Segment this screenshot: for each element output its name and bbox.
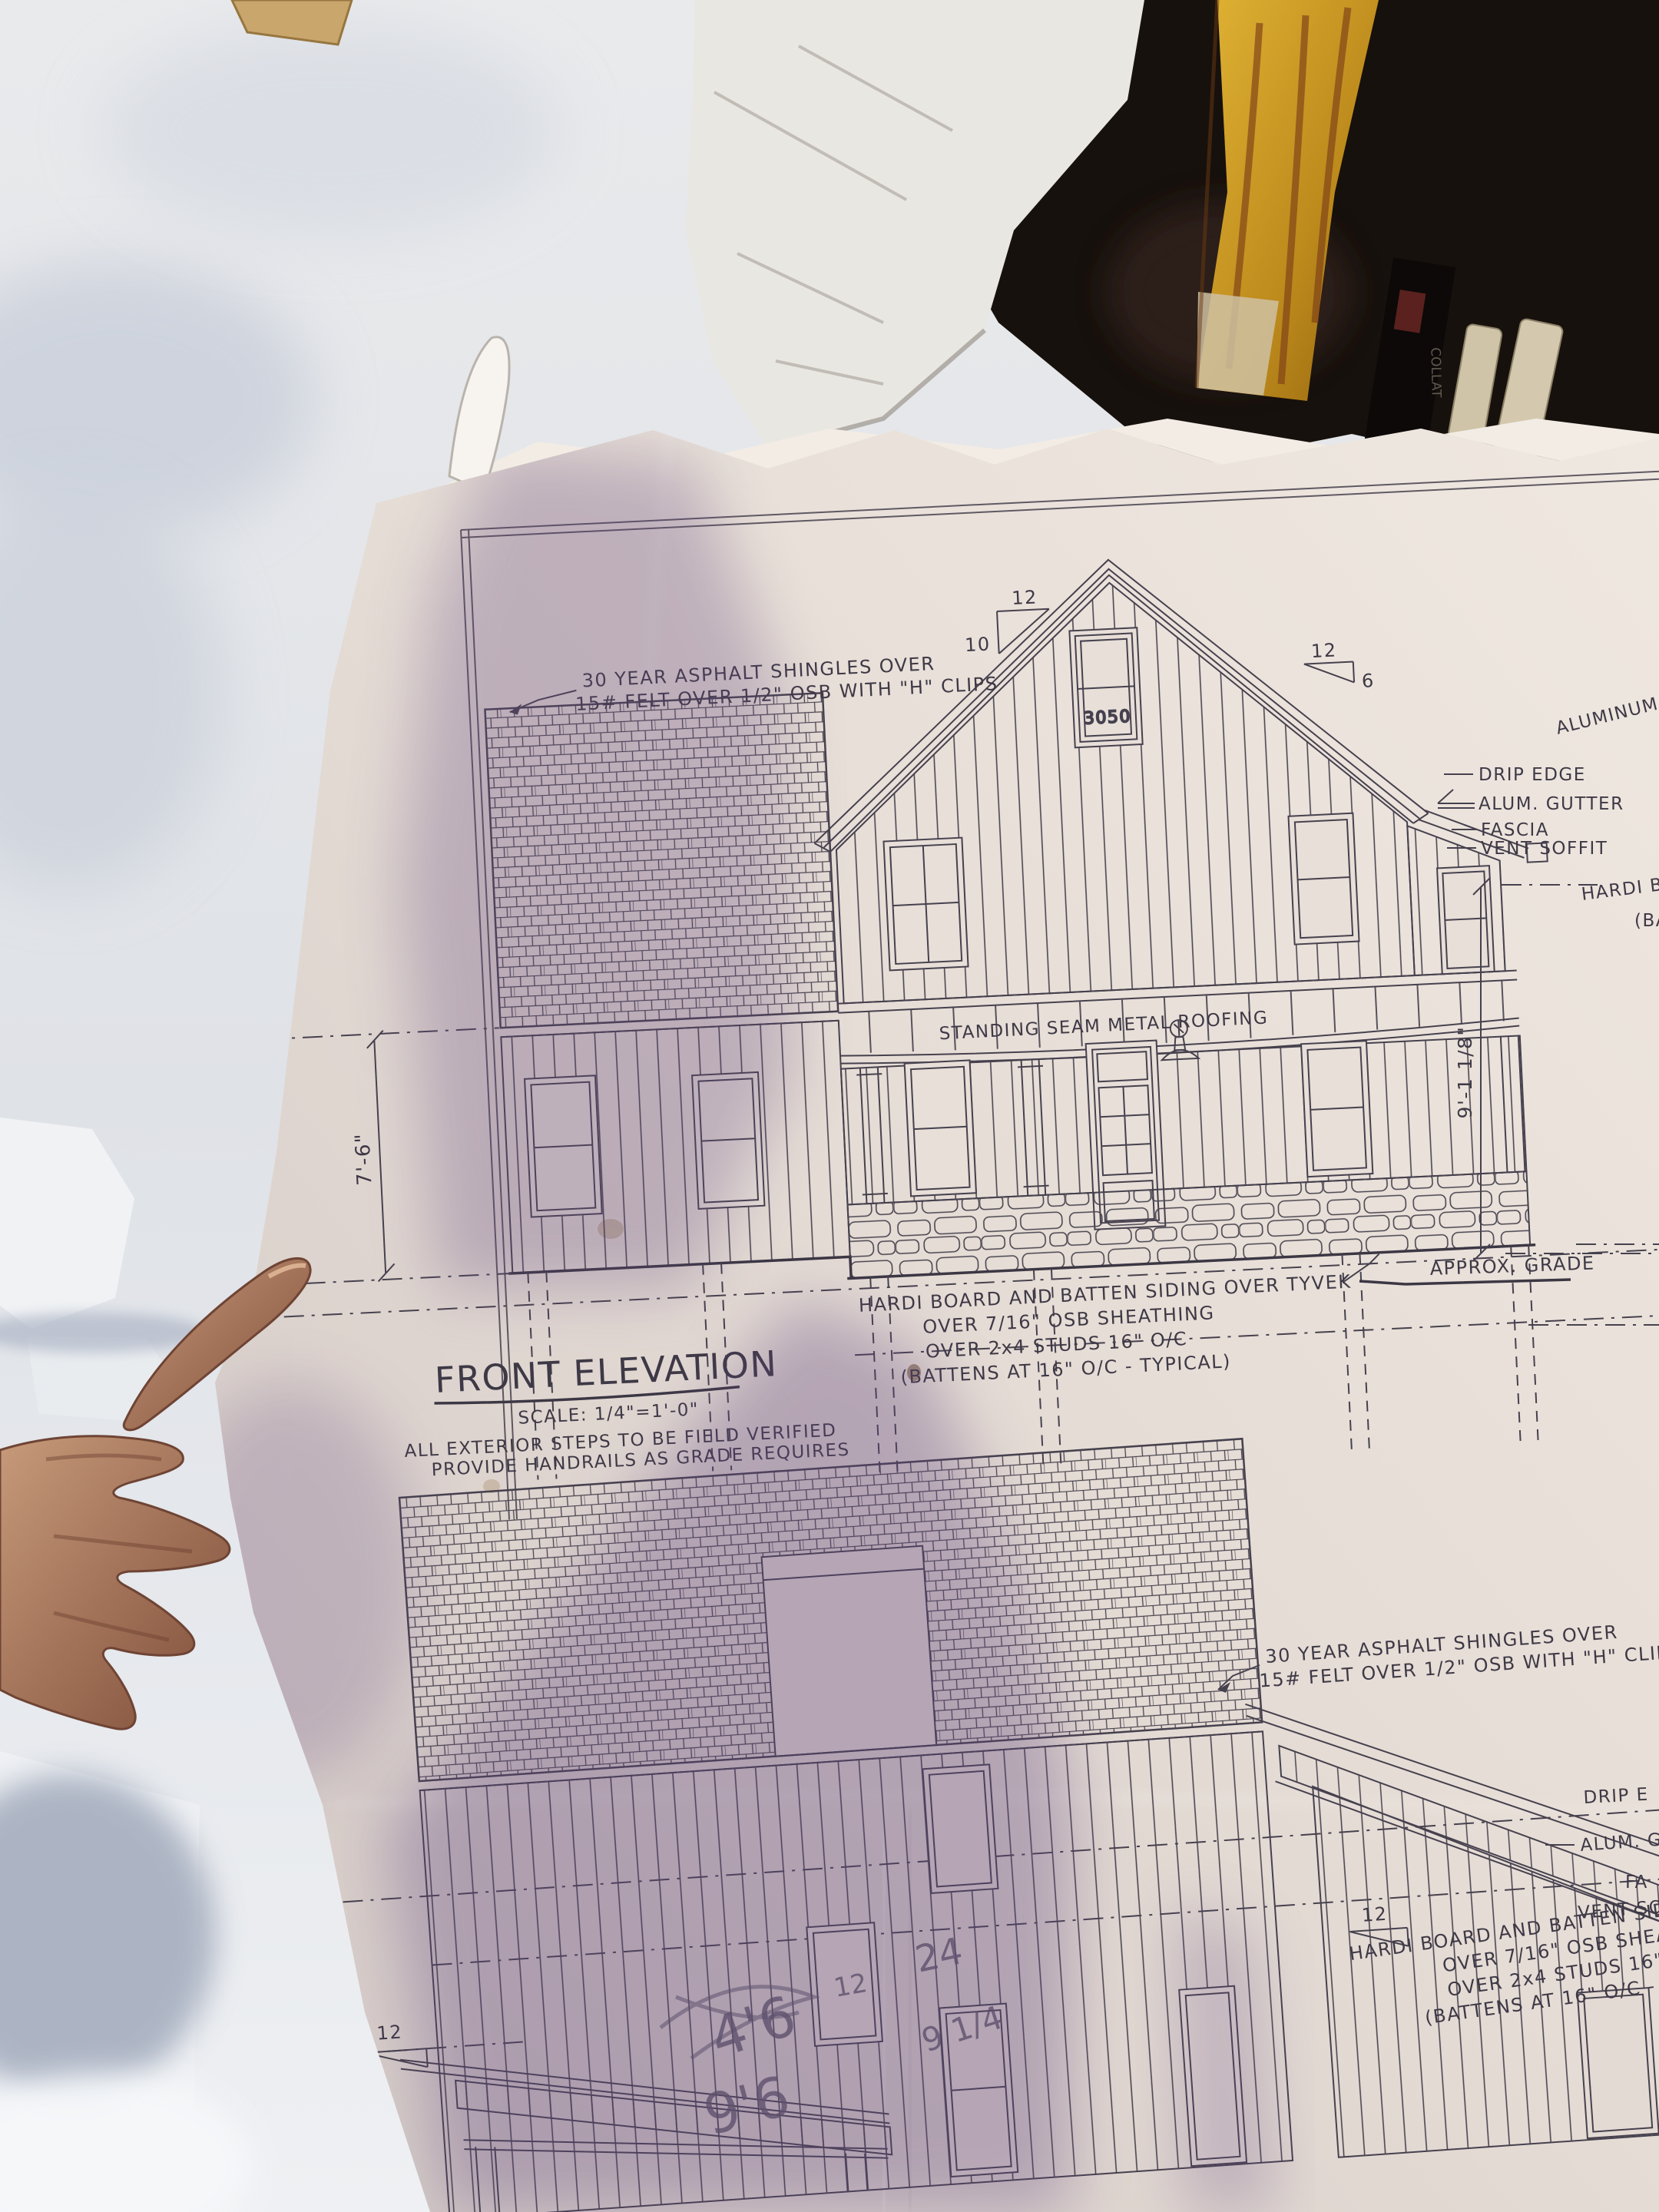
drip-edge-cut-label: DRIP E xyxy=(1583,1785,1649,1808)
gable-window: 3050 xyxy=(1069,628,1142,747)
fascia-cut-label: FA xyxy=(1625,1873,1648,1892)
pitch-rise: 12 xyxy=(1012,586,1038,609)
box-label: COLLAT xyxy=(1428,347,1444,398)
fascia-label: FASCIA xyxy=(1481,820,1549,840)
window xyxy=(1288,813,1359,945)
alum-gutter-label: ALUM. GUTTER xyxy=(1479,794,1624,814)
vent-soffit-label: VENT SOFFIT xyxy=(1481,839,1608,859)
photo-of-blueprint: COLLAT xyxy=(0,0,1659,2212)
window xyxy=(883,838,968,971)
dim-right-label: 9'-1 1/8" xyxy=(1454,1026,1476,1119)
pitch-run: 10 xyxy=(964,634,991,657)
background-objects: COLLAT xyxy=(686,0,1659,492)
pitch-run: 6 xyxy=(1361,670,1375,692)
hardi-cutoff-line2: (BA xyxy=(1634,911,1659,931)
window xyxy=(905,1060,976,1196)
dim-left-label: 7'-6" xyxy=(351,1132,376,1186)
window xyxy=(1301,1041,1373,1177)
pitch-rise: 12 xyxy=(1361,1903,1388,1926)
pitch-rise: 12 xyxy=(376,2021,403,2044)
window-size-label: 3050 xyxy=(1083,707,1131,729)
drip-edge-label: DRIP EDGE xyxy=(1479,765,1586,785)
pitch-rise: 12 xyxy=(1310,639,1337,662)
window xyxy=(1578,1988,1659,2138)
